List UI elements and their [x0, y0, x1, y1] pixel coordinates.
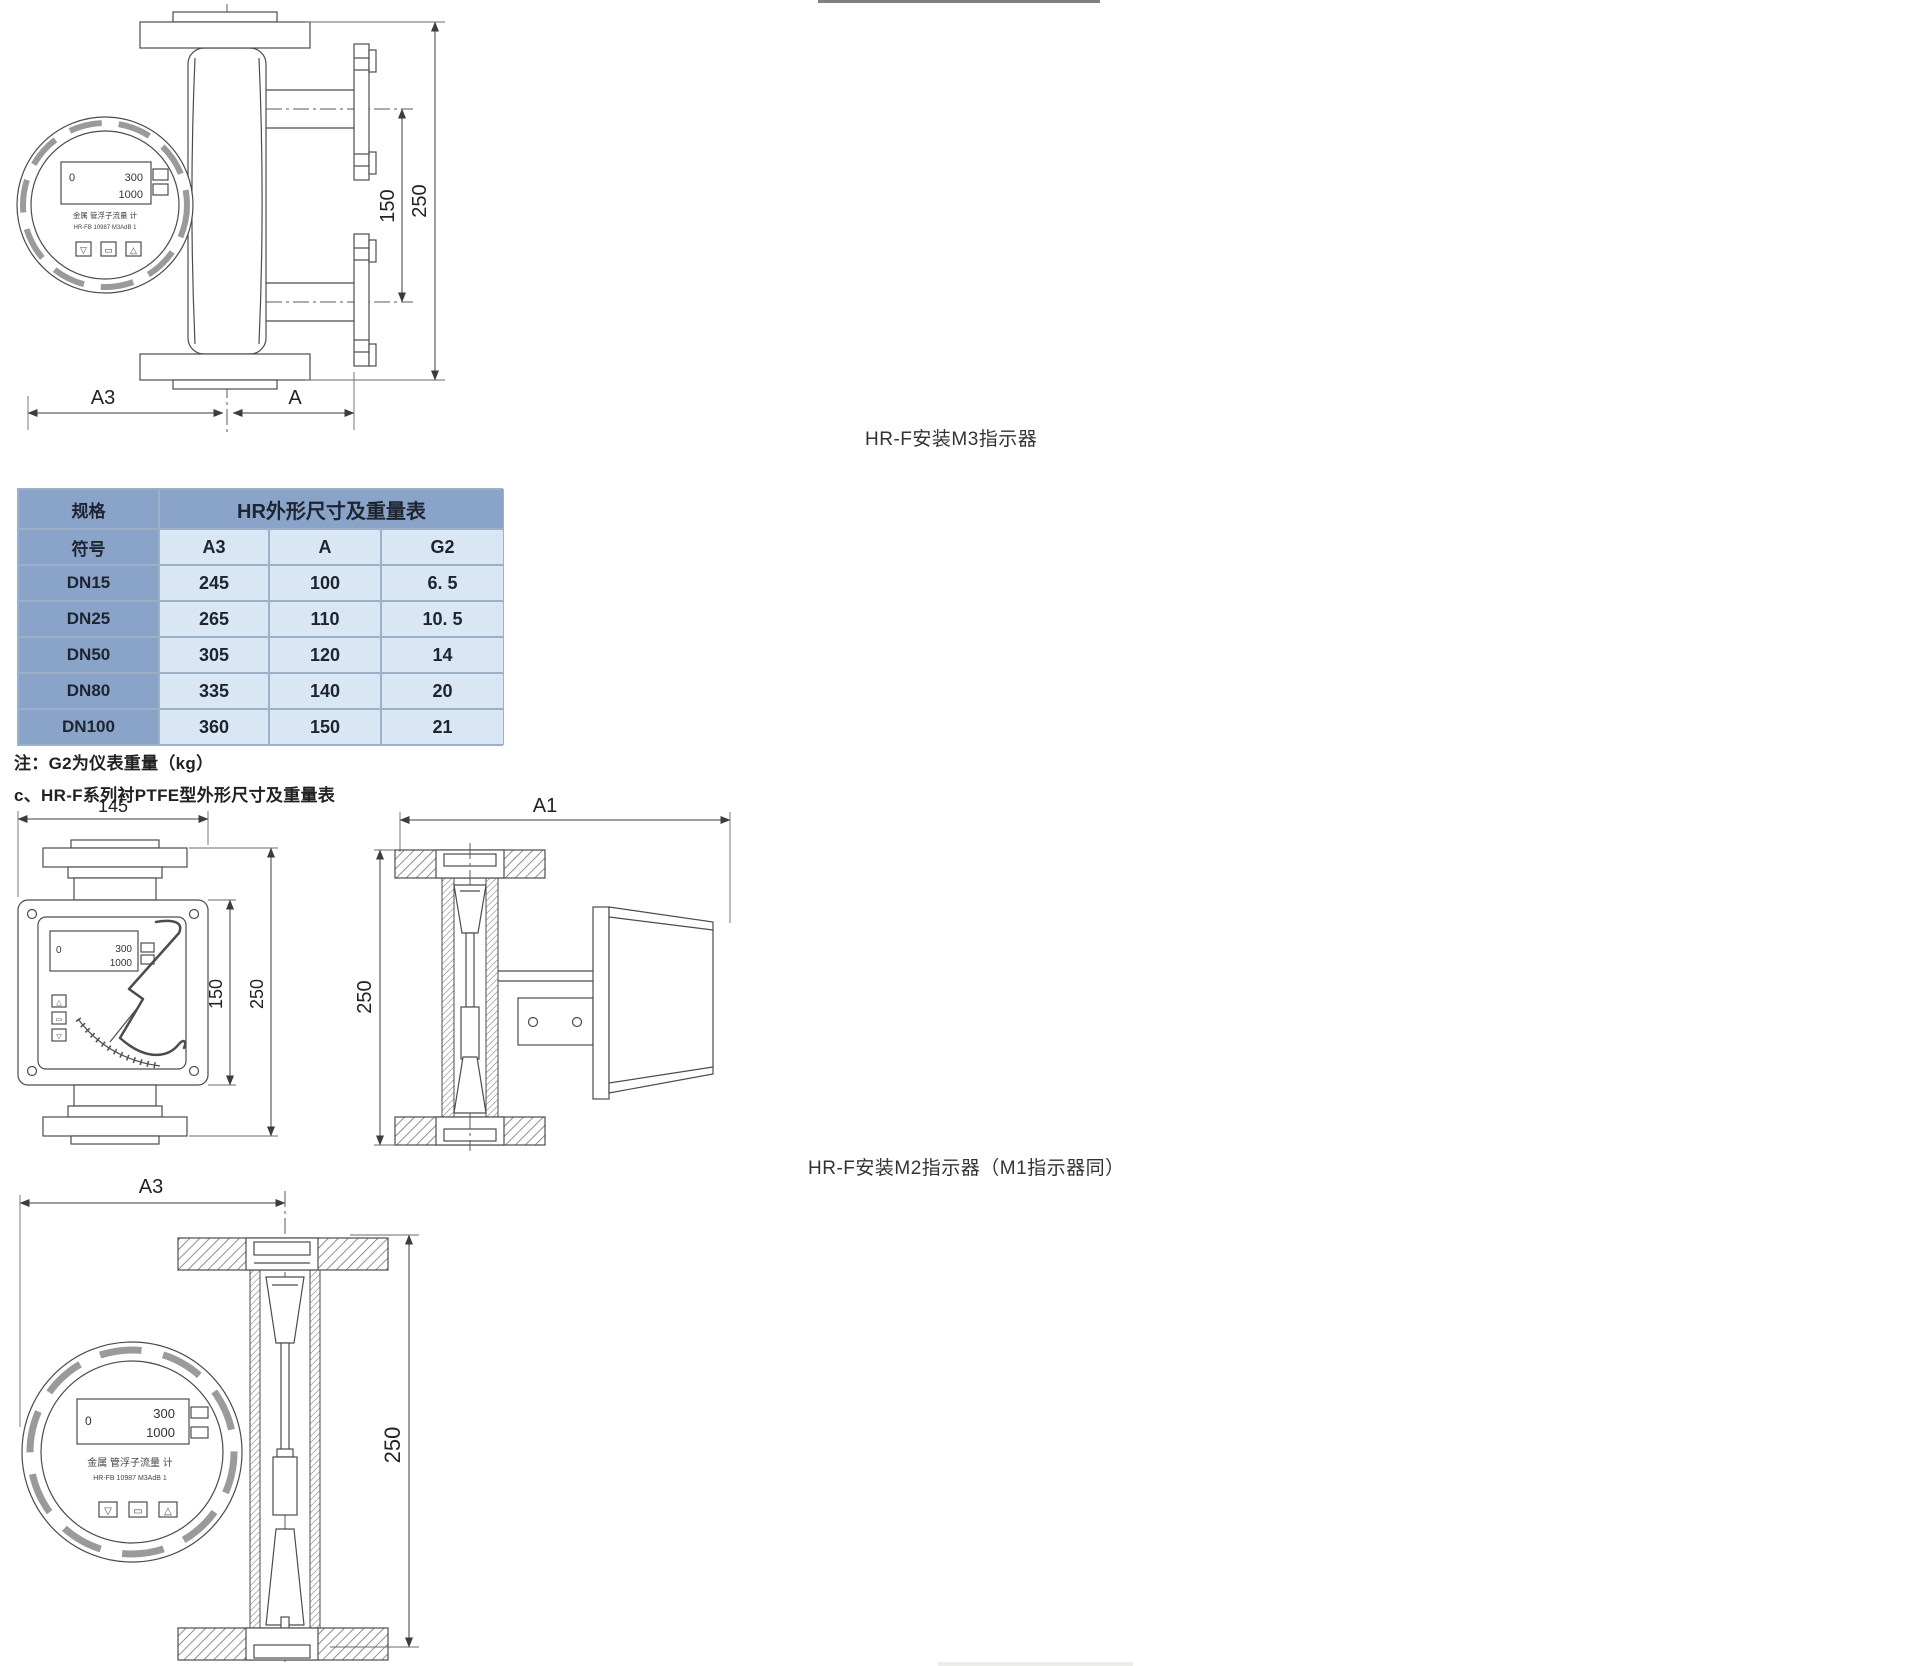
- faceplate-model: HR-FB 10987 M3AdB 1: [93, 1475, 167, 1482]
- bottom-flange: [140, 354, 310, 380]
- bottom-cap: [173, 380, 277, 389]
- lcd-left-value: 0: [85, 1414, 92, 1428]
- spec-cell: DN80: [18, 673, 159, 709]
- col-header-g2: G2: [381, 529, 504, 565]
- indicator-housing-profile: [609, 907, 713, 1093]
- top-flange: [43, 848, 187, 867]
- round-indicator: 0 300 1000 金属 管浮子流量 计 HR-FB 10987 M3AdB …: [22, 1342, 242, 1562]
- upper-guide-cone: [266, 1277, 304, 1343]
- dim-250-label: 250: [380, 1427, 405, 1464]
- caption-m2-indicator: HR-F安装M2指示器（M1指示器同）: [808, 1153, 1125, 1180]
- up-arrow-icon: △: [164, 1506, 172, 1517]
- value-cell-a: 140: [269, 673, 381, 709]
- diagram-side-view-m3: 0 300 1000 金属 管浮子流量 计 HR-FB 10987 M3AdB …: [5, 0, 460, 450]
- value-cell-a3: 265: [159, 601, 269, 637]
- down-arrow-icon: ▽: [80, 245, 87, 255]
- faceplate-model: HR-FB 10987 M3AdB 1: [73, 225, 137, 231]
- page-edge-artifact-top: [818, 0, 1100, 3]
- lcd-row2-value: 1000: [110, 958, 133, 969]
- lcd-row2-value: 1000: [119, 189, 143, 201]
- table-title: HR外形尺寸及重量表: [159, 489, 504, 529]
- dim-a3-label: A3: [139, 1176, 163, 1198]
- round-indicator-m3: 0 300 1000 金属 管浮子流量 计 HR-FB 10987 M3AdB …: [17, 117, 193, 293]
- diagram-front-view-m2: 145 0 300 1000 △ ▭ ▽: [8, 795, 293, 1155]
- top-flange-section: [178, 1238, 388, 1270]
- top-flange: [140, 22, 310, 48]
- faceplate-title: 金属 管浮子流量 计: [87, 1456, 173, 1469]
- top-cap: [173, 12, 277, 22]
- tube-wall-left: [442, 878, 454, 1117]
- up-arrow-icon: △: [56, 1000, 62, 1007]
- float: [273, 1457, 297, 1515]
- datasheet-page: 0 300 1000 金属 管浮子流量 计 HR-FB 10987 M3AdB …: [0, 0, 1920, 1666]
- page-edge-artifact-bottom: [938, 1662, 1133, 1666]
- meter-body: [188, 48, 266, 354]
- value-cell-a3: 245: [159, 565, 269, 601]
- col-header-a3: A3: [159, 529, 269, 565]
- bottom-flange-section: [178, 1628, 388, 1660]
- dim-a-label: A: [288, 387, 302, 409]
- lcd-row1-value: 300: [153, 1406, 175, 1421]
- value-cell-a3: 335: [159, 673, 269, 709]
- value-cell-g2: 10. 5: [381, 601, 504, 637]
- spec-cell: DN25: [18, 601, 159, 637]
- value-cell-g2: 21: [381, 709, 504, 745]
- dim-250-label: 250: [247, 979, 267, 1009]
- caption-m3-indicator: HR-F安装M3指示器: [865, 424, 1037, 451]
- value-cell-a: 110: [269, 601, 381, 637]
- right-flange-lower: [354, 234, 376, 366]
- lower-guide-cone: [454, 1057, 486, 1113]
- lcd-left-value: 0: [56, 945, 62, 956]
- down-arrow-icon: ▽: [56, 1034, 62, 1041]
- up-arrow-icon: △: [130, 245, 137, 255]
- table-corner-header: 规格: [18, 489, 159, 529]
- spec-table: 规格 HR外形尺寸及重量表 符号 A3 A G2 DN152451006. 5D…: [17, 488, 503, 746]
- dim-250-label: 250: [409, 184, 431, 217]
- dim-145-label: 145: [98, 796, 128, 816]
- spec-cell: DN100: [18, 709, 159, 745]
- lcd-row1-value: 300: [115, 944, 132, 955]
- float: [461, 1007, 479, 1059]
- value-cell-g2: 6. 5: [381, 565, 504, 601]
- value-cell-a: 150: [269, 709, 381, 745]
- tube-wall-right: [310, 1270, 320, 1628]
- enter-icon: ▭: [104, 245, 113, 255]
- lcd-side-icon: [153, 184, 168, 195]
- value-cell-g2: 20: [381, 673, 504, 709]
- bottom-flange: [43, 1117, 187, 1136]
- enter-icon: ▭: [133, 1506, 142, 1517]
- value-cell-g2: 14: [381, 637, 504, 673]
- lcd-left-value: 0: [69, 172, 75, 184]
- dim-250-label: 250: [354, 980, 376, 1013]
- value-cell-a3: 305: [159, 637, 269, 673]
- lcd-side-icon: [191, 1407, 208, 1418]
- dim-a3-label: A3: [91, 387, 115, 409]
- enter-icon: ▭: [56, 1017, 63, 1024]
- g2-weight-note: 注：G2为仪表重量（kg）: [14, 749, 213, 774]
- dim-150-label: 150: [377, 189, 399, 222]
- table-symbol-header: 符号: [18, 529, 159, 565]
- lcd-side-icon: [153, 169, 168, 180]
- right-flange-upper: [354, 44, 376, 180]
- diagram-section-view-a1: A1 250: [350, 795, 750, 1155]
- upper-guide-cone: [454, 885, 486, 933]
- dim-150-label: 150: [206, 979, 226, 1009]
- down-arrow-icon: ▽: [104, 1506, 112, 1517]
- value-cell-a: 120: [269, 637, 381, 673]
- col-header-a: A: [269, 529, 381, 565]
- diagram-section-round-indicator: A3 0 300 1: [5, 1175, 425, 1666]
- faceplate-title: 金属 管浮子流量 计: [73, 210, 138, 220]
- value-cell-a: 100: [269, 565, 381, 601]
- lower-guide-cone: [266, 1529, 304, 1625]
- spec-cell: DN15: [18, 565, 159, 601]
- tube-wall-right: [486, 878, 498, 1117]
- lcd-row1-value: 300: [125, 172, 143, 184]
- value-cell-a3: 360: [159, 709, 269, 745]
- housing-back-plate: [593, 907, 609, 1099]
- tube-wall-left: [250, 1270, 260, 1628]
- spec-cell: DN50: [18, 637, 159, 673]
- float-stem: [281, 1343, 289, 1453]
- dim-a1-label: A1: [533, 795, 557, 817]
- lcd-row2-value: 1000: [146, 1425, 175, 1440]
- lcd-side-icon: [141, 943, 154, 952]
- float-stem: [466, 933, 474, 1007]
- lcd-side-icon: [191, 1427, 208, 1438]
